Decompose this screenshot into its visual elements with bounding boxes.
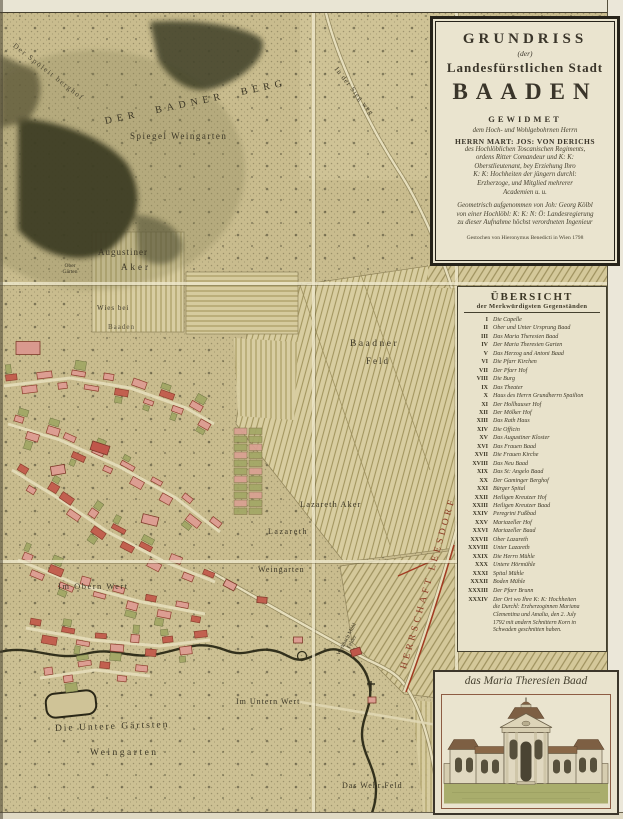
legend-panel: ÜBERSICHT der Merkwürdigsten Gegenstände… [457,286,607,652]
legend-row: XIVDie Officin [458,426,606,434]
vignette-caption: das Maria Theresien Baad [435,675,617,687]
legend-numeral: I [458,316,493,324]
legend-entry-name: Die Pfarr Kirchen [493,358,537,366]
title-cartouche-inner: GRUNDRISS (der) Landesfürstlichen Stadt … [435,21,615,261]
legend-entry-name: Der Pfarr Hof [493,367,527,375]
legend-divider [464,312,600,313]
vignette-maria-theresien-baad: das Maria Theresien Baad [433,670,619,815]
legend-numeral: XXIX [458,553,493,561]
legend-row: XVIIDie Frauen Kirche [458,451,606,459]
legend-entry-name: Das Herzog und Antoni Baad [493,350,564,358]
legend-numeral: XII [458,409,493,417]
legend-numeral: V [458,350,493,358]
legend-row: XXIIIHeiligen Kreutzer Baad [458,502,606,510]
legend-entry-name: Mariazeller Hof [493,519,532,527]
surveyor-text: Geometrisch aufgenommen von Joh: Georg K… [436,202,614,228]
legend-entry-name: Das Frauen Baad [493,443,536,451]
legend-subtitle: der Merkwürdigsten Gegenständen [458,303,606,310]
legend-row: VDas Herzog und Antoni Baad [458,350,606,358]
legend-row: IIOber und Unter Ursprung Baad [458,324,606,332]
legend-note: XXXIVDer Ort wo Ihre K: K: Hochheiten di… [458,596,606,635]
legend-numeral: XIV [458,426,493,434]
sheet-edge-left [0,0,3,819]
legend-row: XXXIIIDer Pfarr Brunn [458,587,606,595]
dedication-line: K: K: Hochheiten der jüngern durchl: [436,171,614,180]
legend-numeral: VII [458,367,493,375]
title-cartouche: GRUNDRISS (der) Landesfürstlichen Stadt … [430,16,620,266]
legend-numeral: XI [458,401,493,409]
legend-note-line: Schwaden geschnitten haben. [493,627,606,635]
legend-entry-name: Unter Lazareth [493,544,530,552]
legend-entry-name: Der Pfarr Brunn [493,587,533,595]
map-title-subtitle: Landesfürstlichen Stadt [436,60,614,76]
legend-numeral: XVII [458,451,493,459]
legend-numeral: VI [458,358,493,366]
legend-entry-name: Mariazeller Baad [493,527,536,535]
legend-row: IDie Capelle [458,316,606,324]
legend-entry-name: Boden Mühle [493,578,525,586]
map-label-augustiner-aker: Aker [121,262,151,272]
legend-row: XXVIIIUnter Lazareth [458,544,606,552]
legend-row: XXIIHeiligen Kreutzer Hof [458,494,606,502]
legend-entry-name: Das Theater [493,384,523,392]
legend-entry-name: Bürger Spital [493,485,525,493]
legend-numeral: XVI [458,443,493,451]
legend-title: ÜBERSICHT [458,291,606,303]
legend-entry-name: Ober Lazareth [493,536,528,544]
legend-row: XIIIDas Rath Haus [458,417,606,425]
legend-entry-name: Untere Hörmühle [493,561,535,569]
legend-numeral: VIII [458,375,493,383]
legend-numeral: IV [458,341,493,349]
legend-entry-name: Heiligen Kreutzer Baad [493,502,550,510]
legend-entry-name: Der Gaminger Berghof [493,477,549,485]
map-label-lazareth-aker: Lazareth Aker [300,499,361,509]
legend-row: XXIVPeregrini Fußbad [458,510,606,518]
legend-numeral: XXVII [458,536,493,544]
map-title-baaden: BAADEN [436,79,614,105]
legend-numeral: IX [458,384,493,392]
legend-entry-name: Das Rath Haus [493,417,530,425]
legend-numeral: XXXII [458,578,493,586]
legend-numeral: XXXIII [458,587,493,595]
legend-numeral: XV [458,434,493,442]
legend-row: VIIDer Pfarr Hof [458,367,606,375]
legend-numeral-last: XXXIV [458,596,493,604]
legend-numeral: III [458,333,493,341]
surveyor-line: von einer Hochlöbl: K: K: N: Ö: Landesre… [436,211,614,220]
historic-map-baaden: Der Spöleit berghof DER BADNER BERG Spie… [0,0,623,819]
legend-numeral: XIX [458,468,493,476]
legend-numeral: II [458,324,493,332]
legend-row: IVDer Maria Theresien Garten [458,341,606,349]
vignette-frame [441,694,611,809]
legend-note-first-line: Der Ort wo Ihre K: K: Hochheiten [493,596,576,604]
map-label-lazareth: Lazareth [268,527,308,536]
legend-row: XVIDas Frauen Baad [458,443,606,451]
map-label-spiegel-weingarten: Spiegel Weingarten [130,131,227,141]
legend-row: XXIXDie Herrn Mühle [458,553,606,561]
engraver-line: Gestochen von Hieronymus Benedicti in Wi… [436,235,614,241]
legend-row: XXXUntere Hörmühle [458,561,606,569]
dedicatee-name: HERRN MART: JOS: VON DERICHS [436,137,614,146]
surveyor-line: zu dieser Aufnahme höchst verordneten In… [436,219,614,228]
legend-numeral: XXXI [458,570,493,578]
map-title-der: (der) [436,49,614,58]
legend-note-lines: die Durchl: Erzherzoginnen MarianaClemen… [458,604,606,634]
legend-numeral: X [458,392,493,400]
legend-numeral: XXX [458,561,493,569]
legend-row: XXXIIBoden Mühle [458,578,606,586]
legend-row: XXDer Gaminger Berghof [458,477,606,485]
dedication-line: des Hochlöblichen Toscanischen Regiments… [436,146,614,155]
dedication-intro: dem Hoch- und Wohlgebohrnen Herrn [436,127,614,136]
legend-numeral: XVIII [458,460,493,468]
surveyor-line: Geometrisch aufgenommen von Joh: Georg K… [436,202,614,211]
dedication-text: des Hochlöblichen Toscanischen Regiments… [436,146,614,198]
legend-note-line: 1792 mit andern Schnittern Korn in [493,620,606,628]
legend-entry-name: Der Hollhauser Hof [493,401,541,409]
map-label-im-untern-wert: Im Untern Wert [236,697,300,706]
map-label-wies-bei: Wies bei [97,304,129,312]
legend-note-line: Clementina und Amalia, den 2. July [493,612,606,620]
legend-entry-name: Der Maria Theresien Garten [493,341,562,349]
legend-entry-name: Haus des Herrn Grundherrn Spailion [493,392,583,400]
legend-entry-name: Die Frauen Kirche [493,451,538,459]
legend-row: XVDas Augustiner Kloster [458,434,606,442]
legend-numeral: XXVI [458,527,493,535]
dedication-line: Oberstlieutenant, bey Erziehung Ihro [436,163,614,172]
legend-row: XIDer Hollhauser Hof [458,401,606,409]
dedication-line: ordens Ritter Comandeur und K: K: [436,154,614,163]
legend-entry-name: Peregrini Fußbad [493,510,536,518]
legend-entry-name: Die Capelle [493,316,522,324]
bath-house-engraving [442,695,610,808]
legend-row: XXVIIOber Lazareth [458,536,606,544]
legend-row: XXVMariazeller Hof [458,519,606,527]
legend-numeral: XXV [458,519,493,527]
legend-numeral: XX [458,477,493,485]
legend-row: XVIIIDas Neu Baad [458,460,606,468]
legend-row: XIXDas St: Angelo Baad [458,468,606,476]
map-label-augustiner: Augustiner [98,247,148,257]
legend-numeral: XXII [458,494,493,502]
fold-line-vertical-1 [312,12,315,819]
legend-entry-name: Heiligen Kreutzer Hof [493,494,546,502]
map-label-wehr-feld: Das Wehr Feld [342,781,403,790]
legend-entry-name: Ober und Unter Ursprung Baad [493,324,570,332]
legend-numeral: XXIII [458,502,493,510]
map-label-im-obern-wert: Im Obern Wert [58,581,129,591]
legend-row: IIIDas Maria Theresien Baad [458,333,606,341]
legend-entry-name: Spital Mühle [493,570,524,578]
dedication-line: Academien u. u. [436,189,614,198]
legend-entry-name: Das Neu Baad [493,460,528,468]
map-label-untere-weingarten: Weingarten [90,748,159,758]
fold-line-horizontal-1 [0,282,623,285]
map-label-baadner-feld: Feld [366,356,390,366]
legend-row: IXDas Theater [458,384,606,392]
legend-entry-name: Das St: Angelo Baad [493,468,543,476]
legend-row: XXVIMariazeller Baad [458,527,606,535]
legend-row: XXXISpital Mühle [458,570,606,578]
legend-entry-name: Die Officin [493,426,520,434]
map-label-baadner: Baadner [350,339,399,349]
map-label-baaden-small: Baaden [108,323,135,331]
legend-numeral: XXVIII [458,544,493,552]
map-label-ober-gaerten: Ober Gärten [58,263,82,275]
legend-numeral: XXIV [458,510,493,518]
legend-entry-name: Der Mölker Hof [493,409,532,417]
legend-note-line: die Durchl: Erzherzoginnen Mariana [493,604,606,612]
legend-row: XXIBürger Spital [458,485,606,493]
dedication-heading: GEWIDMET [436,114,614,124]
legend-entry-name: Die Herrn Mühle [493,553,535,561]
map-title-grundriss: GRUNDRISS [436,31,614,48]
legend-entry-name: Das Maria Theresien Baad [493,333,558,341]
legend-numeral: XXI [458,485,493,493]
legend-row: XHaus des Herrn Grundherrn Spailion [458,392,606,400]
legend-entry-name: Die Burg [493,375,515,383]
legend-items: IDie Capelle IIOber und Unter Ursprung B… [458,316,606,595]
dedication-line: Erzherzoge, und Mitglied mehrerer [436,180,614,189]
legend-row: VIIIDie Burg [458,375,606,383]
map-label-weingarten-mid: Weingarten [258,565,305,574]
legend-row: XIIDer Mölker Hof [458,409,606,417]
legend-row: VIDie Pfarr Kirchen [458,358,606,366]
legend-entry-name: Das Augustiner Kloster [493,434,550,442]
legend-numeral: XIII [458,417,493,425]
sheet-margin-top [0,0,623,13]
